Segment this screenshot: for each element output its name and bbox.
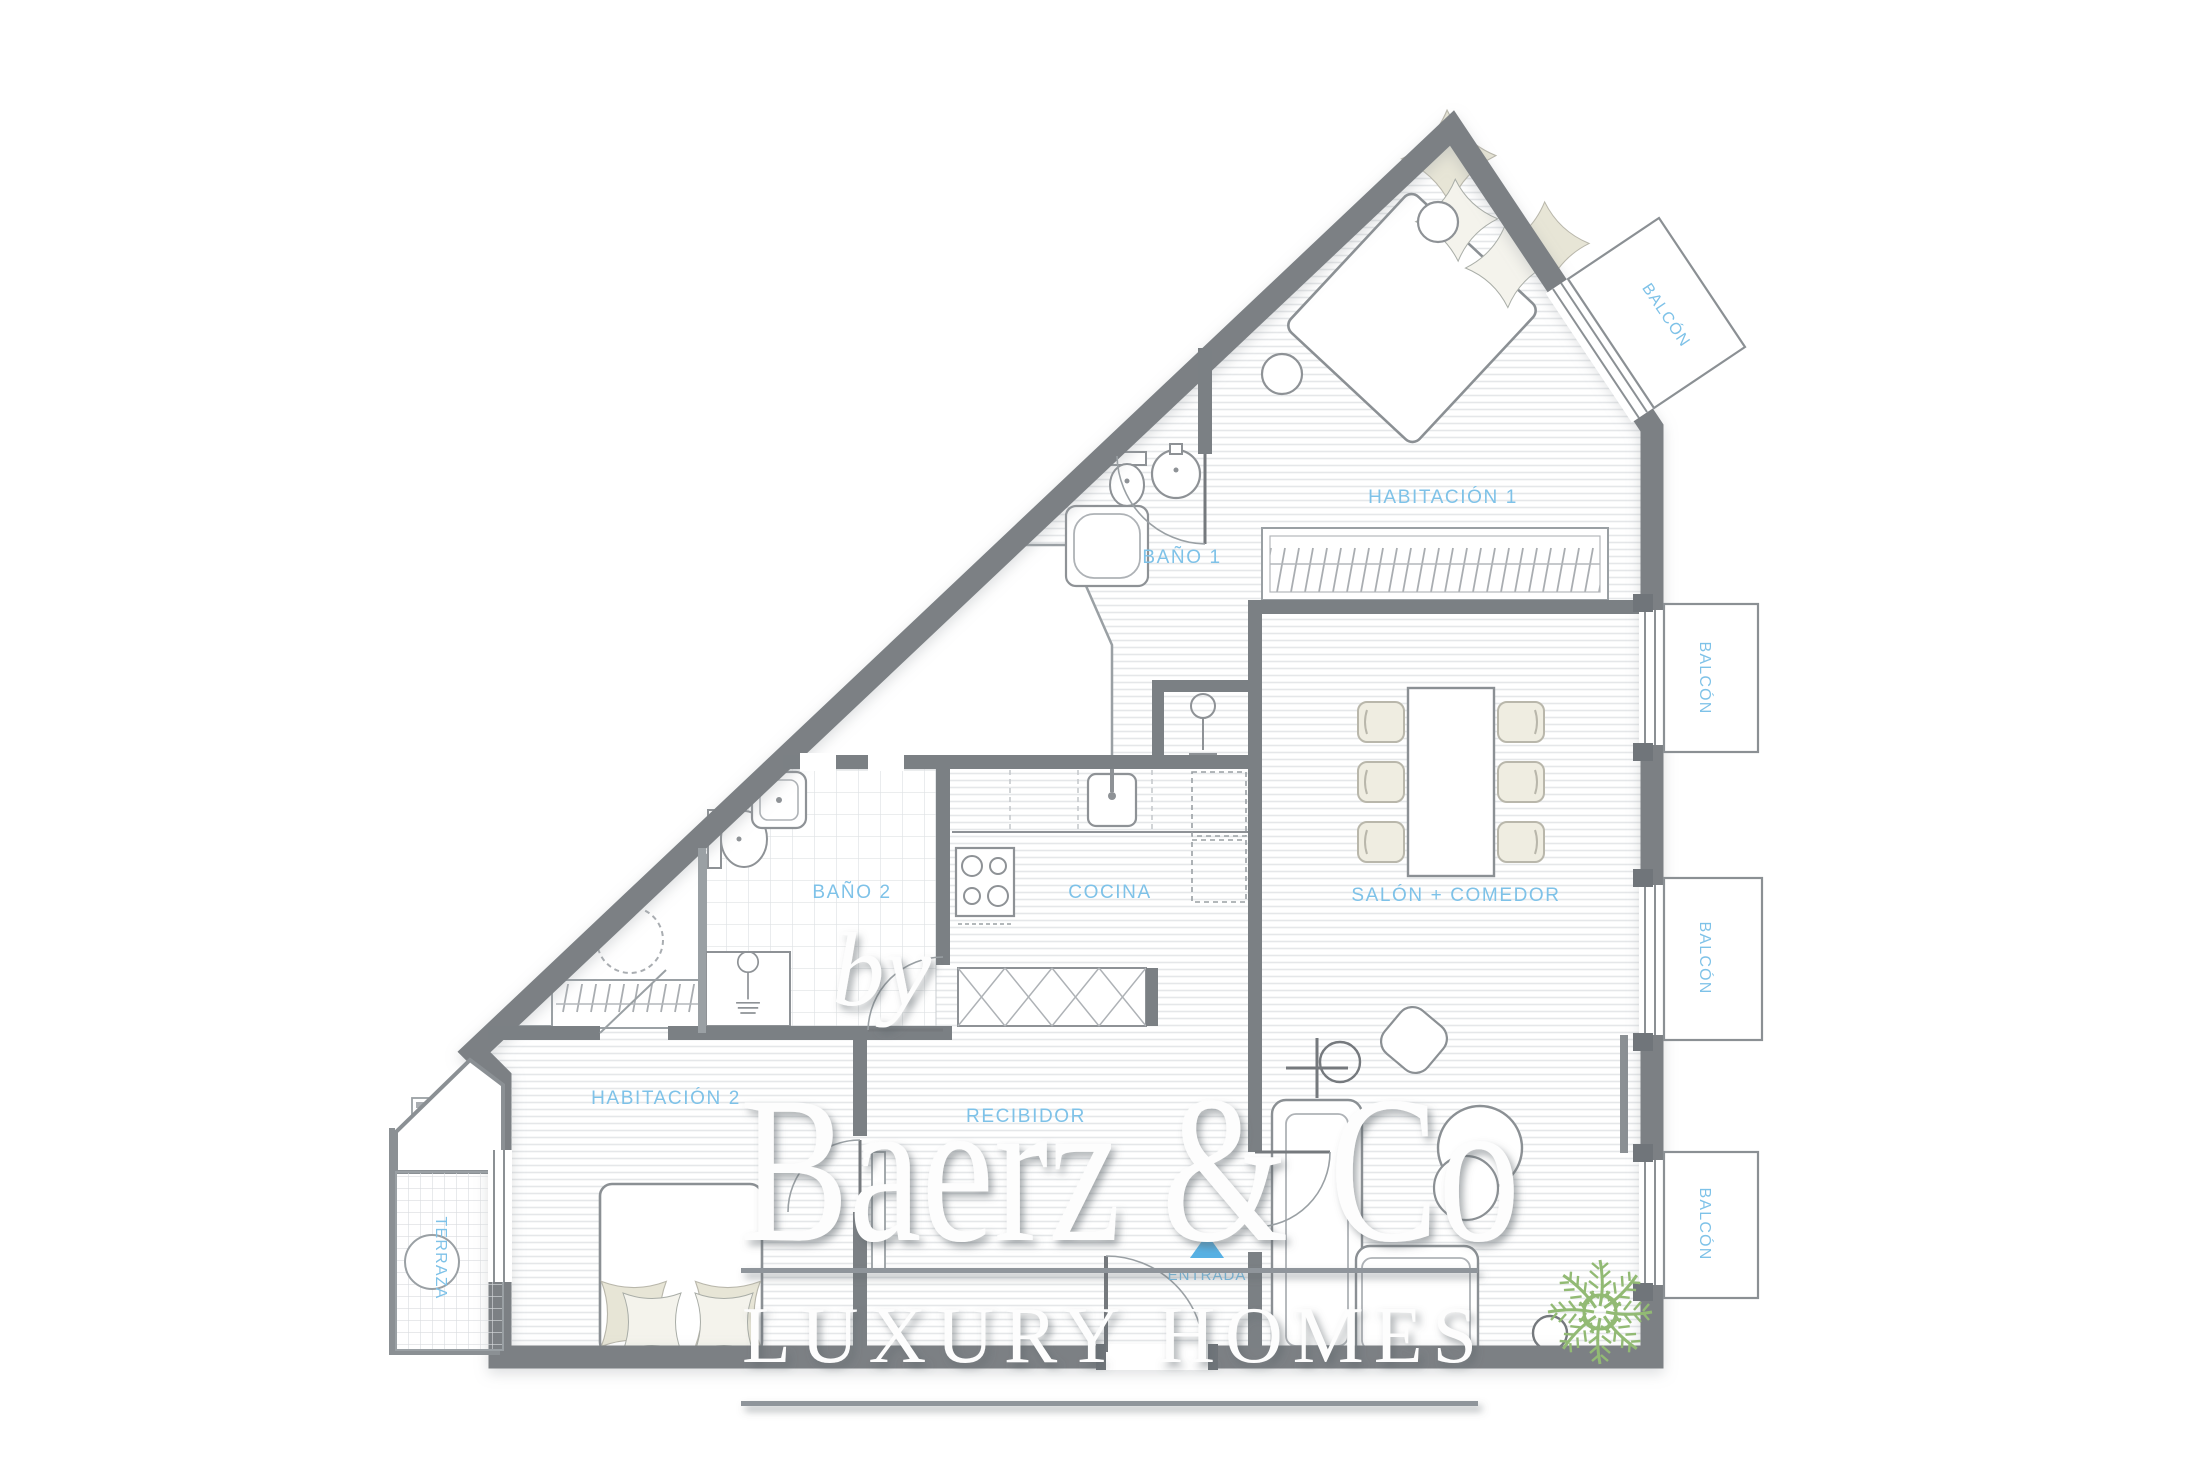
balcony-4: BALCÓN [1664,1152,1758,1298]
wall-salon-west-mid [1248,770,1262,1026]
wall-bano2-thin [698,848,706,1033]
floorplan-page: BALCÓN BALCÓN BALCÓN BALCÓN HABITACIÓN 1… [0,0,2210,1460]
label-salon-comedor: SALÓN + COMEDOR [1351,884,1560,906]
kitchen-cabinets [958,968,1146,1026]
label-cocina: COCINA [1068,882,1152,903]
wall-salon-west-upper [1248,600,1262,770]
label-habitacion-2: HABITACIÓN 2 [591,1087,741,1109]
label-bano-1: BAÑO 1 [1142,546,1221,568]
watermark-rule-top [741,1268,1478,1273]
wall-cabinet-stub [1146,968,1158,1026]
balcony-2: BALCÓN [1664,604,1758,752]
watermark-rule-bottom [741,1401,1478,1406]
shower-bano2 [706,952,790,1026]
floorplan-drawing: BALCÓN BALCÓN BALCÓN BALCÓN HABITACIÓN 1… [0,0,2210,1460]
label-habitacion-1: HABITACIÓN 1 [1368,486,1518,508]
watermark-by: by [832,911,932,1028]
terraza-walls [392,1060,503,1352]
wardrobe-hab1 [1262,528,1608,600]
wall-shower-west [1152,680,1164,769]
nightstand-2 [1262,354,1302,394]
balcony-4-label: BALCÓN [1696,1188,1715,1261]
balcony-3: BALCÓN [1664,878,1762,1040]
wall-hab1-bano1 [1198,348,1212,454]
tv-panel [1620,1035,1628,1153]
stove-icon [956,848,1014,924]
nightstand-1 [1418,202,1458,242]
dining-set [1358,688,1544,876]
wall-band-south-a [488,1026,600,1040]
wall-band-south-b [668,1026,952,1040]
balcony-3-label: BALCÓN [1696,922,1715,995]
balcony-2-label: BALCÓN [1696,642,1715,715]
label-terraza: TERRAZA [432,1216,449,1299]
bathtub-bano1 [1066,506,1148,586]
side-table [1533,1316,1567,1350]
wall-shower-north [1152,680,1250,692]
label-bano-2: BAÑO 2 [812,881,891,903]
wardrobe-hab2 [552,980,702,1028]
wall-kitchen-north [783,755,1262,769]
bed-double-hab2 [600,1184,762,1354]
terrace-table [405,1235,459,1289]
dining-table [1408,688,1494,876]
wall-wardrobe-south [1252,600,1641,614]
watermark-brand: Baerz & Co [740,1054,1520,1286]
wall-bano2-kitchen [936,755,950,965]
